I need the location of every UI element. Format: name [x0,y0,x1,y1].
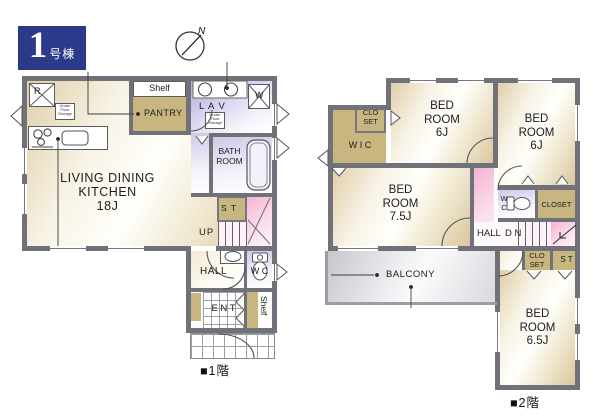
shelf-side-label: Shelf [259,296,269,315]
st-f1-label: S T [221,203,237,213]
compass-icon: N [176,26,206,60]
balcony-label: BALCONY [386,269,435,280]
washer-label: W [255,90,264,100]
wall [244,292,247,328]
hall-f2-label: HALL [477,228,501,239]
window [50,246,86,251]
window [458,78,484,83]
stair-treads-f2 [518,222,551,246]
floor-plan: 1 号棟 Under Floor Storage Under Floor Sto… [0,0,600,419]
wall [209,133,272,137]
window [518,78,552,83]
kitchen-counter [28,126,108,150]
window [575,105,580,141]
wc-f2-label: W C [499,194,509,212]
fridge-space-box [29,83,55,107]
bedroom-se-entry [498,251,522,270]
balcony-wall [325,251,328,305]
wall [186,76,191,135]
under-floor-storage-label: Under Floor Storage [206,113,224,125]
vent-triangle [277,264,287,280]
window [22,148,27,174]
vent-triangle [277,104,289,124]
vent-triangle [318,150,328,166]
wall [22,76,277,81]
dn-label: D N [505,228,521,239]
wall [22,246,191,251]
bedroom-se-label: BED ROOM 6.5J [500,308,575,349]
wc-f1-label: W C [247,266,272,276]
wall [495,385,580,390]
hall-washbasin-box [220,249,246,264]
stair-pink-f2 [551,222,575,246]
wall [191,288,272,292]
window [272,138,277,160]
vent-triangle [11,106,22,126]
under-floor-storage-lav: Under Floor Storage [205,112,225,129]
building-number: 1 [29,26,48,66]
hall-f1-label: HALL [200,266,227,277]
wall [470,168,474,246]
pantry-label: PANTRY [144,108,183,118]
bedroom-nw-label: BED ROOM 6J [400,100,484,141]
bedroom-ne-label: BED ROOM 6J [498,113,575,154]
window [108,246,144,251]
window [575,334,580,360]
window [22,184,27,214]
st-f2-label: S T [553,255,580,264]
wall [129,131,191,135]
wall [386,78,391,110]
window [410,78,436,83]
under-floor-storage-label: Under Floor Storage [56,104,74,116]
building-suffix: 号棟 [49,45,75,62]
wic-label: W I C [338,140,382,150]
window [416,246,458,251]
vent-triangle [277,138,289,158]
room-lav-alcove [191,133,209,193]
bedroom-w-label: BED ROOM 7.5J [348,184,453,225]
balcony-wall [325,302,497,305]
ent-label: E N T [203,303,244,314]
wall [191,193,272,197]
closet-e-label: CLOSET [538,200,575,209]
window [575,298,580,324]
wall [498,185,580,190]
entrance-shelf-left [191,293,201,321]
shelf-top-label: Shelf [133,83,186,93]
wall [498,218,580,222]
entrance-shelf-right [247,292,258,328]
lav-label: L A V [199,101,226,112]
bathroom-label: BATH ROOM [213,147,246,166]
under-floor-storage-kitchen: Under Floor Storage [55,103,75,120]
porch [190,333,275,359]
wall [328,105,333,248]
floor2-caption: ■2階 [510,392,540,411]
up-label: UP [199,227,214,238]
wall [186,328,277,333]
ldk-label: LIVING DINING KITCHEN 18J [35,171,180,213]
window [338,246,378,251]
floor1-caption: ■1階 [200,360,230,379]
closet-nw-label: CLO SET [355,109,386,126]
stair-winder-f1 [247,196,272,246]
stair-treads-f1 [218,222,247,246]
closet-s-label: CLO SET [524,252,550,269]
window [272,264,277,281]
window [272,104,277,126]
fridge-label: R [34,86,41,96]
building-badge: 1 号棟 [18,26,86,70]
compass-north-label: N [198,26,206,37]
